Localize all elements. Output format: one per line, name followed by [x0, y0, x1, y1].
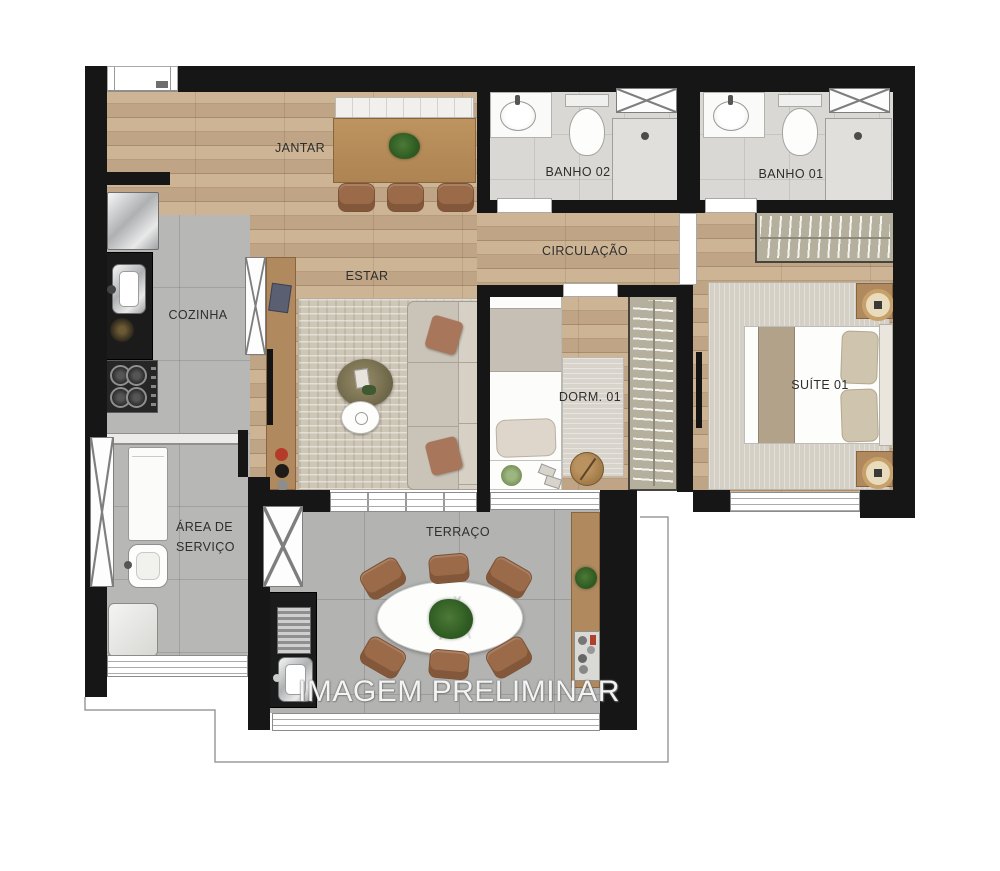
slipper: [544, 475, 562, 489]
bed-pillow: [495, 418, 556, 458]
service-bottom-window: [107, 655, 248, 677]
banho02-door: [497, 198, 552, 213]
tv-icon: [696, 352, 702, 428]
wall-segment: [477, 200, 497, 213]
room-label-dorm01: DORM. 01: [559, 390, 621, 404]
toilet-banho01: [778, 94, 822, 107]
door-handle-icon: [156, 81, 168, 88]
shaft-terrace: [263, 506, 303, 587]
room-label-suite01: SUÍTE 01: [791, 378, 848, 392]
wall-left: [85, 66, 107, 697]
dining-chair: [338, 183, 375, 212]
tv-icon: [267, 349, 273, 425]
dorm-door: [563, 283, 618, 297]
toilet-bowl-icon: [782, 108, 818, 156]
wall-segment: [477, 88, 490, 213]
vanity-banho01: [703, 92, 765, 138]
suite-closet-rack: [755, 211, 895, 263]
banho01-door: [705, 198, 757, 213]
dining-bench: [335, 97, 474, 118]
room-label-area-servico: ÁREA DE SERVIÇO: [176, 517, 242, 557]
faucet-icon: [728, 95, 733, 105]
laundry-tank: [128, 544, 168, 588]
table-plant: [389, 133, 420, 159]
faucet-icon: [515, 95, 520, 105]
shower-box-banho01: [825, 118, 892, 202]
room-label-banho02: BANHO 02: [545, 165, 610, 179]
wall-segment: [238, 430, 248, 477]
wall-segment: [757, 200, 915, 213]
service-window: [90, 437, 114, 587]
suite-door: [679, 213, 697, 285]
room-label-banho01: BANHO 01: [758, 167, 823, 181]
table-plant: [429, 599, 473, 639]
shaft-banho01: [829, 88, 890, 113]
room-label-cozinha: COZINHA: [168, 308, 227, 322]
decor-black: [275, 464, 289, 478]
dining-chair: [437, 183, 474, 212]
room-label-circulacao: CIRCULAÇÃO: [542, 244, 628, 258]
duvet: [489, 308, 561, 372]
decor-bowl: [110, 318, 134, 342]
wall-segment: [477, 490, 490, 512]
wall-segment: [552, 200, 705, 213]
magazine: [268, 283, 292, 314]
living-sliding-door: [330, 492, 477, 512]
decor-red: [275, 448, 288, 461]
wall-segment: [677, 88, 700, 213]
shaft-banho02: [616, 88, 677, 113]
wall-segment: [477, 285, 490, 490]
bed-runner: [758, 327, 795, 443]
laundry-cabinet: [128, 447, 168, 541]
faucet-icon: [273, 674, 281, 682]
counter-plant: [575, 567, 597, 589]
nightstand: [856, 283, 893, 319]
entry-door: [107, 66, 178, 92]
watermark-text: IMAGEM PRELIMINAR: [298, 675, 620, 709]
room-label-estar: ESTAR: [346, 269, 389, 283]
service-sliding-track: [107, 433, 248, 445]
tall-cabinet: [245, 257, 266, 355]
dorm-window: [490, 492, 600, 510]
terrace-railing: [272, 713, 600, 731]
washing-machine: [108, 603, 158, 657]
bed-pillow: [840, 330, 879, 384]
single-bed: [488, 295, 562, 462]
terrace-wood-counter: [571, 512, 600, 688]
flower-vase: [501, 465, 522, 486]
kitchen-sink: [112, 264, 146, 314]
wall-segment: [693, 490, 730, 512]
terrace-chair: [428, 552, 470, 584]
coffee-table-woven: [337, 359, 393, 407]
lamp-icon: [862, 457, 894, 489]
sofa: [407, 301, 480, 490]
shower-drain-icon: [854, 132, 862, 140]
decor-red: [590, 635, 596, 645]
coffee-table-white: [341, 401, 380, 434]
wall-segment: [100, 172, 170, 185]
grill: [277, 607, 311, 654]
toilet-bowl-icon: [569, 108, 605, 156]
dorm-closet-rack: [628, 295, 678, 491]
faucet-icon: [124, 561, 132, 569]
decor-plant-small: [362, 385, 376, 395]
wall-segment: [860, 490, 915, 518]
wall-right: [893, 66, 915, 518]
floor-plan: JANTAR BANHO 02 BANHO 01 CIRCULAÇÃO ESTA…: [0, 0, 1000, 871]
vanity-banho02: [490, 92, 552, 138]
bed-pillow: [840, 388, 879, 442]
suite-window: [730, 492, 860, 512]
drinks-tray: [574, 631, 600, 681]
shower-drain-icon: [641, 132, 649, 140]
toilet-banho02: [565, 94, 609, 107]
dining-chair: [387, 183, 424, 212]
bed-bench: [488, 460, 562, 490]
headboard: [879, 324, 893, 446]
nightstand: [856, 451, 893, 487]
wall-segment: [677, 285, 693, 492]
shower-box-banho02: [612, 118, 679, 202]
stool: [570, 452, 604, 486]
room-label-terraco: TERRAÇO: [426, 525, 490, 539]
room-label-jantar: JANTAR: [275, 141, 325, 155]
fridge: [107, 192, 159, 250]
stove: [105, 360, 158, 413]
stove-knobs: [151, 367, 156, 406]
faucet-icon: [107, 285, 116, 294]
lamp-icon: [862, 289, 894, 321]
wall-top: [178, 66, 915, 92]
